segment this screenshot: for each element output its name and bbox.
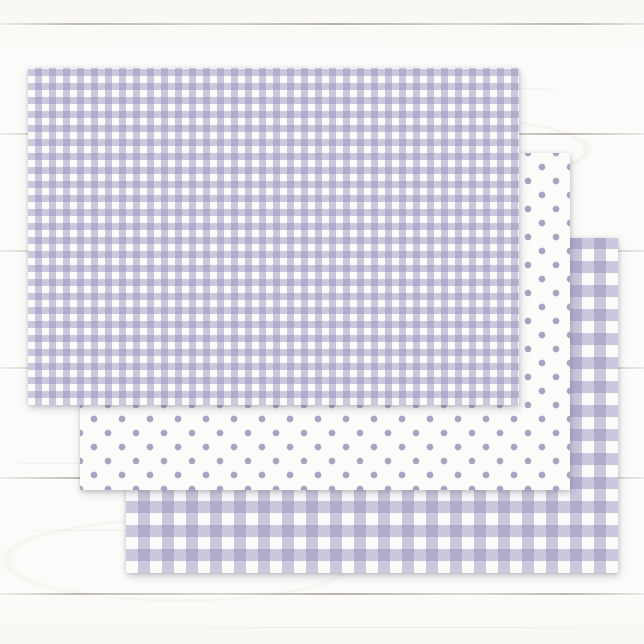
wood-plank-gap-line xyxy=(0,593,644,595)
wood-plank-gap-line xyxy=(0,23,644,25)
wood-grain-streak xyxy=(140,627,644,628)
wrapping-paper-product-photo xyxy=(0,0,644,644)
tissue-sheet-small-gingham xyxy=(28,68,519,405)
